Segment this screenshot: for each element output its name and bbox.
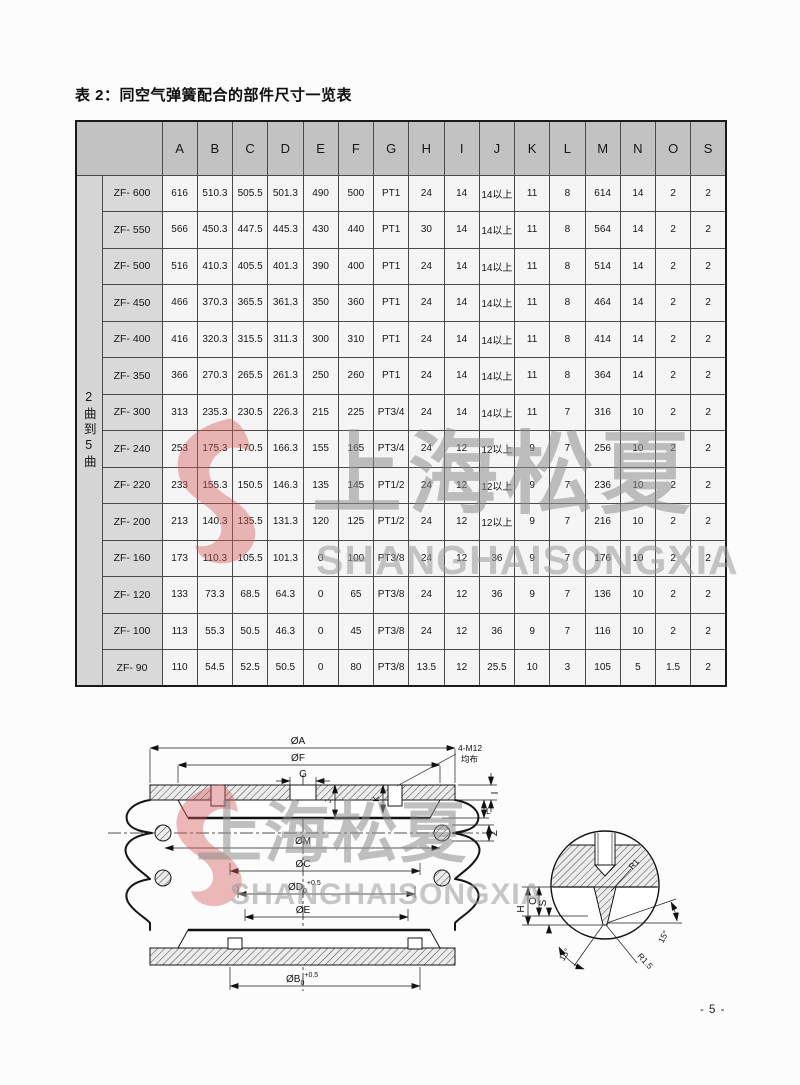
row-group-cell: 2曲到5曲 xyxy=(76,175,102,686)
dim-label-h: H xyxy=(516,905,527,912)
value-cell: 135 xyxy=(303,467,338,504)
column-header-D: D xyxy=(268,121,303,175)
bolt-callout: 4-M12 xyxy=(458,743,482,753)
dim-label-z: Z xyxy=(489,830,500,836)
value-cell: 14以上 xyxy=(479,394,514,431)
value-cell: 450.3 xyxy=(197,212,232,249)
value-cell: 2 xyxy=(691,212,726,249)
value-cell: 2 xyxy=(691,394,726,431)
mounting-bolt xyxy=(228,938,242,949)
value-cell: 0 xyxy=(303,577,338,614)
column-header-G: G xyxy=(374,121,409,175)
value-cell: PT3/4 xyxy=(374,431,409,468)
value-cell: 24 xyxy=(409,321,444,358)
value-cell: 401.3 xyxy=(268,248,303,285)
column-header-J: J xyxy=(479,121,514,175)
value-cell: PT1/2 xyxy=(374,467,409,504)
value-cell: 14 xyxy=(444,394,479,431)
value-cell: 7 xyxy=(550,540,585,577)
value-cell: 10 xyxy=(620,504,655,541)
value-cell: 24 xyxy=(409,504,444,541)
value-cell: 564 xyxy=(585,212,620,249)
value-cell: 133 xyxy=(162,577,197,614)
value-cell: 313 xyxy=(162,394,197,431)
model-cell: ZF- 90 xyxy=(102,650,162,687)
dim-label-angle-left: 15° xyxy=(557,946,572,962)
model-cell: ZF- 160 xyxy=(102,540,162,577)
value-cell: 25.5 xyxy=(479,650,514,687)
value-cell: 14 xyxy=(620,175,655,212)
girdle-ring xyxy=(155,825,171,841)
value-cell: 24 xyxy=(409,175,444,212)
value-cell: 414 xyxy=(585,321,620,358)
value-cell: 2 xyxy=(656,212,691,249)
value-cell: 12 xyxy=(444,431,479,468)
value-cell: 11 xyxy=(515,175,550,212)
value-cell: 14 xyxy=(620,285,655,322)
value-cell: 2 xyxy=(656,175,691,212)
column-header-K: K xyxy=(515,121,550,175)
value-cell: 14以上 xyxy=(479,248,514,285)
bellows-section-view: ØA ØF G 4-M12 均布 I L xyxy=(108,736,501,991)
value-cell: 12 xyxy=(444,467,479,504)
value-cell: 236 xyxy=(585,467,620,504)
value-cell: 11 xyxy=(515,358,550,395)
value-cell: 10 xyxy=(620,394,655,431)
value-cell: 3 xyxy=(550,650,585,687)
value-cell: 11 xyxy=(515,321,550,358)
value-cell: 12 xyxy=(444,540,479,577)
bottom-plate xyxy=(150,948,455,965)
dim-label-ob: ØB0+0.5 xyxy=(286,972,318,987)
value-cell: 30 xyxy=(409,212,444,249)
value-cell: 400 xyxy=(338,248,373,285)
value-cell: 2 xyxy=(691,175,726,212)
technical-drawing: ØA ØF G 4-M12 均布 I L xyxy=(90,733,710,1018)
value-cell: 175.3 xyxy=(197,431,232,468)
bellows-left-profile xyxy=(126,800,152,930)
bead-detail-view: H O S R1 15° R1.5 15° xyxy=(516,831,682,971)
table-row: 2曲到5曲ZF- 600616510.3505.5501.3490500PT12… xyxy=(76,175,726,212)
value-cell: 2 xyxy=(691,467,726,504)
column-header-C: C xyxy=(233,121,268,175)
column-header-S: S xyxy=(691,121,726,175)
column-header-I: I xyxy=(444,121,479,175)
value-cell: 101.3 xyxy=(268,540,303,577)
value-cell: PT3/4 xyxy=(374,394,409,431)
value-cell: 24 xyxy=(409,540,444,577)
value-cell: PT1/2 xyxy=(374,504,409,541)
value-cell: 300 xyxy=(303,321,338,358)
value-cell: 233 xyxy=(162,467,197,504)
value-cell: 166.3 xyxy=(268,431,303,468)
value-cell: 68.5 xyxy=(233,577,268,614)
value-cell: 405.5 xyxy=(233,248,268,285)
value-cell: 14 xyxy=(444,248,479,285)
value-cell: 2 xyxy=(656,613,691,650)
model-cell: ZF- 240 xyxy=(102,431,162,468)
column-header-F: F xyxy=(338,121,373,175)
value-cell: 125 xyxy=(338,504,373,541)
dim-label-l: L xyxy=(486,806,491,816)
value-cell: 7 xyxy=(550,467,585,504)
value-cell: 370.3 xyxy=(197,285,232,322)
column-header-H: H xyxy=(409,121,444,175)
dim-label-r1-5: R1.5 xyxy=(636,951,656,971)
value-cell: 150.5 xyxy=(233,467,268,504)
value-cell: 116 xyxy=(585,613,620,650)
dim-label-om: ØM xyxy=(295,836,311,847)
value-cell: 14 xyxy=(620,321,655,358)
value-cell: 50.5 xyxy=(268,650,303,687)
model-cell: ZF- 350 xyxy=(102,358,162,395)
value-cell: 24 xyxy=(409,613,444,650)
model-cell: ZF- 600 xyxy=(102,175,162,212)
value-cell: PT3/8 xyxy=(374,650,409,687)
value-cell: 14以上 xyxy=(479,175,514,212)
value-cell: 8 xyxy=(550,285,585,322)
table-row: ZF- 550566450.3447.5445.3430440PT1301414… xyxy=(76,212,726,249)
value-cell: 7 xyxy=(550,431,585,468)
value-cell: 8 xyxy=(550,248,585,285)
value-cell: 2 xyxy=(691,540,726,577)
value-cell: 2 xyxy=(691,613,726,650)
value-cell: 366 xyxy=(162,358,197,395)
value-cell: 250 xyxy=(303,358,338,395)
table-row: ZF- 240253175.3170.5166.3155165PT3/42412… xyxy=(76,431,726,468)
model-cell: ZF- 120 xyxy=(102,577,162,614)
value-cell: 12以上 xyxy=(479,504,514,541)
value-cell: 9 xyxy=(515,467,550,504)
value-cell: 350 xyxy=(303,285,338,322)
value-cell: 10 xyxy=(620,577,655,614)
value-cell: 131.3 xyxy=(268,504,303,541)
value-cell: 14以上 xyxy=(479,358,514,395)
value-cell: 500 xyxy=(338,175,373,212)
value-cell: 11 xyxy=(515,248,550,285)
value-cell: 24 xyxy=(409,248,444,285)
value-cell: 2 xyxy=(656,285,691,322)
model-cell: ZF- 100 xyxy=(102,613,162,650)
value-cell: 11 xyxy=(515,394,550,431)
value-cell: 14 xyxy=(620,212,655,249)
mounting-bolt xyxy=(408,938,422,949)
value-cell: 14 xyxy=(444,175,479,212)
value-cell: 105.5 xyxy=(233,540,268,577)
column-header-A: A xyxy=(162,121,197,175)
bottom-bead-plate xyxy=(178,930,440,948)
model-cell: ZF- 200 xyxy=(102,504,162,541)
value-cell: PT1 xyxy=(374,321,409,358)
value-cell: 170.5 xyxy=(233,431,268,468)
value-cell: 14 xyxy=(444,358,479,395)
table-row: ZF- 300313235.3230.5226.3215225PT3/42414… xyxy=(76,394,726,431)
table-row: ZF- 350366270.3265.5261.3250260PT1241414… xyxy=(76,358,726,395)
value-cell: PT3/8 xyxy=(374,540,409,577)
mounting-bolt xyxy=(388,785,402,806)
value-cell: 215 xyxy=(303,394,338,431)
value-cell: 445.3 xyxy=(268,212,303,249)
value-cell: 55.3 xyxy=(197,613,232,650)
value-cell: 11 xyxy=(515,212,550,249)
value-cell: 12 xyxy=(444,613,479,650)
value-cell: 440 xyxy=(338,212,373,249)
value-cell: 105 xyxy=(585,650,620,687)
value-cell: 8 xyxy=(550,212,585,249)
value-cell: 45 xyxy=(338,613,373,650)
value-cell: 490 xyxy=(303,175,338,212)
corner-cell xyxy=(76,121,162,175)
value-cell: 2 xyxy=(691,577,726,614)
value-cell: 9 xyxy=(515,540,550,577)
column-header-O: O xyxy=(656,121,691,175)
dim-label-oa: ØA xyxy=(291,736,306,747)
value-cell: 230.5 xyxy=(233,394,268,431)
value-cell: 24 xyxy=(409,431,444,468)
page-title: 表 2：同空气弹簧配合的部件尺寸一览表 xyxy=(75,84,352,105)
value-cell: PT3/8 xyxy=(374,577,409,614)
model-cell: ZF- 220 xyxy=(102,467,162,504)
value-cell: PT1 xyxy=(374,175,409,212)
model-cell: ZF- 400 xyxy=(102,321,162,358)
value-cell: PT1 xyxy=(374,358,409,395)
girdle-ring xyxy=(434,870,450,886)
table-row: ZF- 160173110.3105.5101.30100PT3/8241236… xyxy=(76,540,726,577)
value-cell: 73.3 xyxy=(197,577,232,614)
value-cell: 145 xyxy=(338,467,373,504)
value-cell: 2 xyxy=(656,358,691,395)
value-cell: 14 xyxy=(620,248,655,285)
value-cell: 2 xyxy=(691,358,726,395)
value-cell: 14以上 xyxy=(479,285,514,322)
dim-label-angle-right: 15° xyxy=(656,929,671,945)
table-row: ZF- 450466370.3365.5361.3350360PT1241414… xyxy=(76,285,726,322)
value-cell: 466 xyxy=(162,285,197,322)
column-header-M: M xyxy=(585,121,620,175)
table-row: ZF- 12013373.368.564.3065PT3/82412369713… xyxy=(76,577,726,614)
value-cell: 213 xyxy=(162,504,197,541)
dim-label-i: I xyxy=(490,792,501,795)
value-cell: 410.3 xyxy=(197,248,232,285)
value-cell: 225 xyxy=(338,394,373,431)
value-cell: 2 xyxy=(656,540,691,577)
value-cell: 9 xyxy=(515,613,550,650)
value-cell: 155 xyxy=(303,431,338,468)
value-cell: 265.5 xyxy=(233,358,268,395)
value-cell: 0 xyxy=(303,650,338,687)
value-cell: 8 xyxy=(550,358,585,395)
value-cell: 464 xyxy=(585,285,620,322)
value-cell: 24 xyxy=(409,358,444,395)
value-cell: 360 xyxy=(338,285,373,322)
value-cell: 501.3 xyxy=(268,175,303,212)
value-cell: 253 xyxy=(162,431,197,468)
value-cell: 514 xyxy=(585,248,620,285)
value-cell: 12 xyxy=(444,504,479,541)
value-cell: 505.5 xyxy=(233,175,268,212)
value-cell: 120 xyxy=(303,504,338,541)
girdle-ring xyxy=(155,870,171,886)
value-cell: 9 xyxy=(515,431,550,468)
value-cell: 216 xyxy=(585,504,620,541)
value-cell: 24 xyxy=(409,467,444,504)
value-cell: 2 xyxy=(656,321,691,358)
value-cell: 0 xyxy=(303,613,338,650)
value-cell: 364 xyxy=(585,358,620,395)
value-cell: 14以上 xyxy=(479,321,514,358)
dim-label-oe: ØE xyxy=(296,905,311,916)
value-cell: 176 xyxy=(585,540,620,577)
value-cell: 2 xyxy=(656,467,691,504)
value-cell: 110 xyxy=(162,650,197,687)
value-cell: 173 xyxy=(162,540,197,577)
value-cell: 361.3 xyxy=(268,285,303,322)
value-cell: 10 xyxy=(620,431,655,468)
value-cell: 2 xyxy=(691,321,726,358)
value-cell: 9 xyxy=(515,504,550,541)
row-group-label: 2曲到5曲 xyxy=(80,390,99,471)
value-cell: 256 xyxy=(585,431,620,468)
value-cell: 146.3 xyxy=(268,467,303,504)
value-cell: 11 xyxy=(515,285,550,322)
value-cell: 10 xyxy=(620,467,655,504)
value-cell: 1.5 xyxy=(656,650,691,687)
value-cell: 390 xyxy=(303,248,338,285)
value-cell: 12 xyxy=(444,650,479,687)
value-cell: 12 xyxy=(444,577,479,614)
table-row: ZF- 200213140.3135.5131.3120125PT1/22412… xyxy=(76,504,726,541)
value-cell: 2 xyxy=(691,650,726,687)
value-cell: 365.5 xyxy=(233,285,268,322)
value-cell: 310 xyxy=(338,321,373,358)
value-cell: 14 xyxy=(444,285,479,322)
value-cell: 311.3 xyxy=(268,321,303,358)
value-cell: 14 xyxy=(444,321,479,358)
value-cell: 8 xyxy=(550,321,585,358)
bellows-right-profile xyxy=(453,800,479,930)
value-cell: 24 xyxy=(409,577,444,614)
value-cell: 2 xyxy=(656,248,691,285)
value-cell: 2 xyxy=(691,431,726,468)
model-cell: ZF- 300 xyxy=(102,394,162,431)
model-cell: ZF- 550 xyxy=(102,212,162,249)
value-cell: 13.5 xyxy=(409,650,444,687)
value-cell: 315.5 xyxy=(233,321,268,358)
value-cell: 113 xyxy=(162,613,197,650)
value-cell: 12以上 xyxy=(479,467,514,504)
value-cell: 14以上 xyxy=(479,212,514,249)
value-cell: 36 xyxy=(479,613,514,650)
value-cell: 52.5 xyxy=(233,650,268,687)
value-cell: 2 xyxy=(656,394,691,431)
column-header-E: E xyxy=(303,121,338,175)
value-cell: 24 xyxy=(409,394,444,431)
dim-label-oc: ØC xyxy=(296,859,311,870)
value-cell: 0 xyxy=(303,540,338,577)
table-row: ZF- 220233155.3150.5146.3135145PT1/22412… xyxy=(76,467,726,504)
value-cell: PT1 xyxy=(374,248,409,285)
column-header-B: B xyxy=(197,121,232,175)
dim-label-j: J xyxy=(323,799,333,803)
dim-label-od: ØD0+0.5 xyxy=(288,880,321,895)
value-cell: 100 xyxy=(338,540,373,577)
value-cell: PT1 xyxy=(374,212,409,249)
spec-table: ABCDEFGHIJKLMNOS 2曲到5曲ZF- 600616510.3505… xyxy=(75,120,727,687)
value-cell: 65 xyxy=(338,577,373,614)
value-cell: 136 xyxy=(585,577,620,614)
value-cell: 12以上 xyxy=(479,431,514,468)
value-cell: 36 xyxy=(479,540,514,577)
header-row: ABCDEFGHIJKLMNOS xyxy=(76,121,726,175)
value-cell: 447.5 xyxy=(233,212,268,249)
value-cell: 5 xyxy=(620,650,655,687)
dim-label-s: S xyxy=(538,899,549,906)
value-cell: 10 xyxy=(620,613,655,650)
value-cell: 7 xyxy=(550,394,585,431)
table-row: ZF- 10011355.350.546.3045PT3/82412369711… xyxy=(76,613,726,650)
value-cell: 50.5 xyxy=(233,613,268,650)
value-cell: 155.3 xyxy=(197,467,232,504)
value-cell: 165 xyxy=(338,431,373,468)
value-cell: 270.3 xyxy=(197,358,232,395)
value-cell: PT3/8 xyxy=(374,613,409,650)
model-cell: ZF- 500 xyxy=(102,248,162,285)
value-cell: 260 xyxy=(338,358,373,395)
value-cell: 2 xyxy=(656,504,691,541)
dim-label-g: G xyxy=(299,769,307,780)
value-cell: 7 xyxy=(550,613,585,650)
value-cell: 2 xyxy=(691,248,726,285)
value-cell: 10 xyxy=(515,650,550,687)
air-inlet-hole xyxy=(290,785,316,800)
value-cell: 36 xyxy=(479,577,514,614)
value-cell: 80 xyxy=(338,650,373,687)
value-cell: 510.3 xyxy=(197,175,232,212)
value-cell: 135.5 xyxy=(233,504,268,541)
value-cell: 46.3 xyxy=(268,613,303,650)
value-cell: 226.3 xyxy=(268,394,303,431)
dim-label-of: ØF xyxy=(291,753,305,764)
value-cell: 235.3 xyxy=(197,394,232,431)
value-cell: PT1 xyxy=(374,285,409,322)
value-cell: 614 xyxy=(585,175,620,212)
mounting-bolt xyxy=(211,785,225,806)
value-cell: 261.3 xyxy=(268,358,303,395)
value-cell: 2 xyxy=(691,285,726,322)
value-cell: 2 xyxy=(656,431,691,468)
value-cell: 430 xyxy=(303,212,338,249)
value-cell: 8 xyxy=(550,175,585,212)
model-cell: ZF- 450 xyxy=(102,285,162,322)
bolt-callout-2: 均布 xyxy=(461,754,478,764)
girdle-ring xyxy=(434,825,450,841)
value-cell: 7 xyxy=(550,577,585,614)
value-cell: 14 xyxy=(444,212,479,249)
value-cell: 14 xyxy=(620,358,655,395)
table-row: ZF- 500516410.3405.5401.3390400PT1241414… xyxy=(76,248,726,285)
value-cell: 616 xyxy=(162,175,197,212)
value-cell: 140.3 xyxy=(197,504,232,541)
value-cell: 54.5 xyxy=(197,650,232,687)
value-cell: 566 xyxy=(162,212,197,249)
value-cell: 24 xyxy=(409,285,444,322)
column-header-L: L xyxy=(550,121,585,175)
value-cell: 64.3 xyxy=(268,577,303,614)
table-row: ZF- 400416320.3315.5311.3300310PT1241414… xyxy=(76,321,726,358)
table-row: ZF- 9011054.552.550.5080PT3/813.51225.51… xyxy=(76,650,726,687)
value-cell: 110.3 xyxy=(197,540,232,577)
value-cell: 9 xyxy=(515,577,550,614)
